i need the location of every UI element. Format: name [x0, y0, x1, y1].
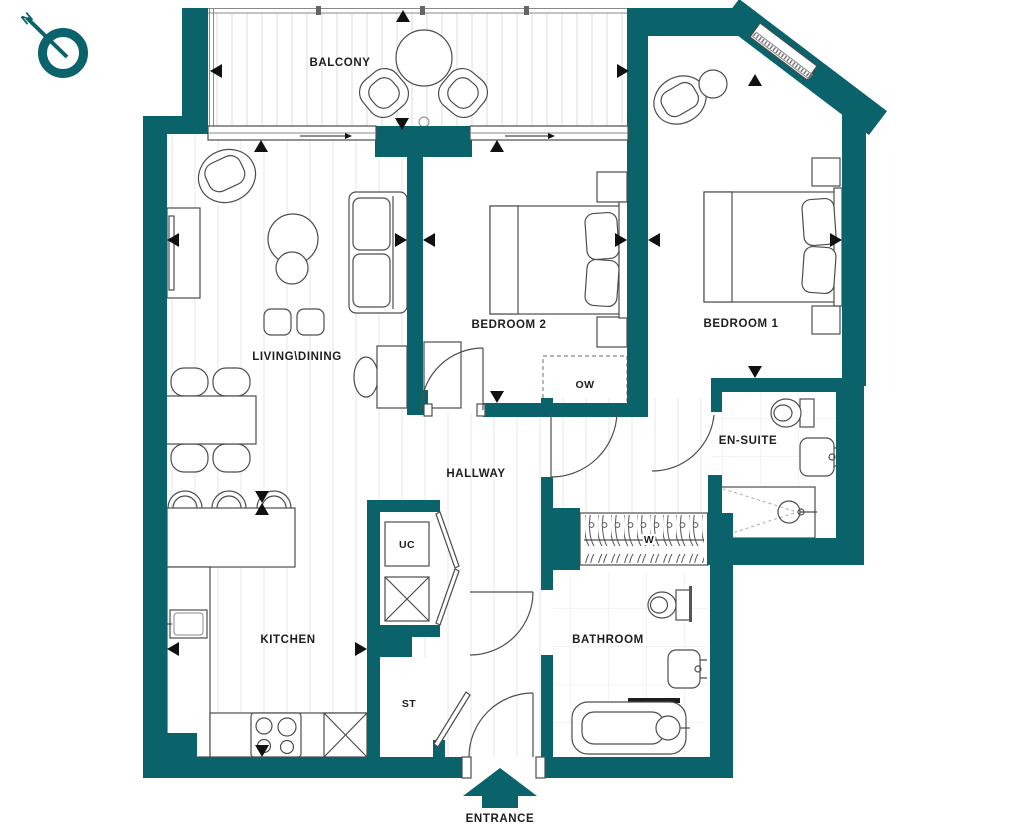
compass: N [18, 9, 84, 74]
wall-bed2-bottom [483, 403, 648, 417]
entrance-label: ENTRANCE [466, 813, 535, 825]
marker-icon [648, 233, 660, 247]
floor-plan-drawing: N BALCONY LIVING\DINING BEDROOM 2 BEDROO… [0, 0, 1036, 830]
entrance-jamb [462, 757, 471, 778]
balcony-label: BALCONY [309, 57, 370, 69]
wall-corridor-stub [708, 475, 722, 515]
door-jamb [477, 404, 485, 416]
coffee-table-small [276, 252, 308, 284]
marker-icon [490, 391, 504, 403]
wall-bath-left [541, 655, 553, 757]
wall-wardrobe-right-cap [707, 513, 733, 565]
rail-post [420, 6, 425, 15]
floor-plan-page: N BALCONY LIVING\DINING BEDROOM 2 BEDROO… [0, 0, 1036, 830]
door-jamb [424, 404, 432, 416]
wall-hall-stub [541, 398, 553, 415]
bedside-table [597, 317, 627, 347]
tv [169, 216, 174, 290]
marker-icon [490, 140, 504, 152]
balcony-table [396, 30, 452, 86]
bedroom2-furniture [412, 172, 643, 408]
toilet-icon [648, 590, 690, 620]
marker-icon [423, 233, 435, 247]
dining-table [166, 396, 256, 444]
pouf [297, 309, 324, 335]
bedside-table [597, 172, 627, 202]
wall-hall-mid [541, 477, 553, 572]
appliance-icon [385, 577, 429, 621]
wardrobe-label: W [644, 534, 654, 546]
wall-living-bed2-divider [407, 150, 423, 415]
wall-bedroom1-right [842, 96, 866, 386]
kitchen-counter-left [167, 567, 210, 757]
ens-suite-label: EN-SUITE [719, 435, 777, 447]
kitchen-counter-top [167, 508, 295, 567]
wall-closet-mid [367, 625, 440, 637]
wall-window-pier [375, 126, 472, 157]
rail-post [524, 6, 529, 15]
wall-wardrobe-left-cap [553, 508, 580, 570]
hallway-label: HALLWAY [446, 468, 505, 480]
partition [689, 586, 692, 622]
bedside-table [812, 158, 840, 186]
bathtub [572, 702, 690, 754]
bedroom1-furniture [645, 67, 842, 334]
wall-bed1-bottom [711, 378, 843, 392]
living-window [208, 126, 376, 140]
wall-bath-stub [541, 572, 553, 590]
bedroom1-label: BEDROOM 1 [703, 318, 778, 330]
wall-ensuite-jamb [711, 378, 722, 412]
rail-post [316, 6, 321, 15]
bedside-table [812, 306, 840, 334]
pouf [264, 309, 291, 335]
desk [377, 346, 407, 408]
marker-icon [748, 74, 762, 86]
uc-label: UC [399, 539, 415, 551]
living-dining-label: LIVING\DINING [252, 351, 342, 363]
wall-bottom-left-block [167, 733, 197, 759]
wall-bottom-right [540, 757, 733, 778]
wall-closet-step [367, 637, 412, 657]
pillow [584, 212, 619, 260]
entrance-arrow-icon [463, 768, 537, 808]
sofa [349, 192, 407, 313]
bed [490, 202, 628, 318]
pillow [584, 259, 619, 307]
entrance-jamb [536, 757, 545, 778]
wall-balcony-left [182, 8, 208, 134]
wall-bottom-left [143, 757, 467, 778]
bedroom2-window [470, 126, 628, 140]
wall-bedroom-divider-right [627, 8, 648, 413]
wall-left [143, 116, 167, 757]
wall-bathroom-right [710, 563, 733, 778]
bedroom2-label: BEDROOM 2 [471, 319, 546, 331]
side-table [699, 70, 727, 98]
marker-icon [748, 366, 762, 378]
wall-closet-top [367, 500, 440, 512]
desk-chair [354, 357, 378, 397]
wall-ensuite-right [836, 383, 864, 543]
dressing-table [424, 342, 461, 408]
ow-label: OW [576, 379, 595, 391]
st-label: ST [402, 698, 416, 710]
bed [704, 188, 842, 306]
kitchen-label: KITCHEN [260, 634, 315, 646]
pillow [801, 246, 836, 294]
appliance-icon [324, 713, 367, 757]
bathroom-label: BATHROOM [572, 634, 644, 646]
toilet-icon [771, 399, 814, 427]
